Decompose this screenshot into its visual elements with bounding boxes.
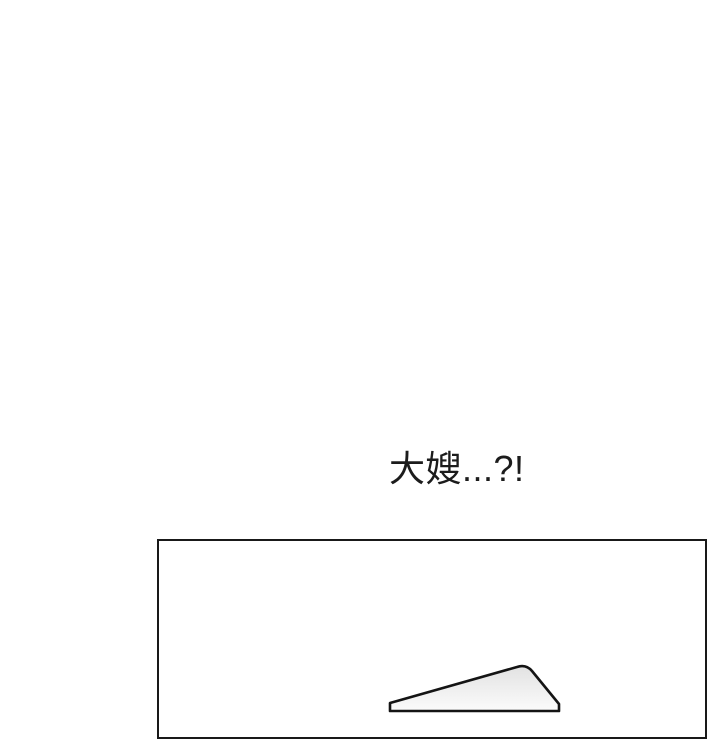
webtoon-page: { "colors": { "background": "#ffffff" },… (0, 0, 720, 700)
comic-page: 大嫂...?! (0, 0, 720, 700)
draped-fabric-edge-shape (390, 666, 559, 711)
dialogue-text: 大嫂...?! (389, 451, 525, 487)
panel-artwork (159, 541, 705, 737)
comic-panel-frame (157, 539, 707, 739)
